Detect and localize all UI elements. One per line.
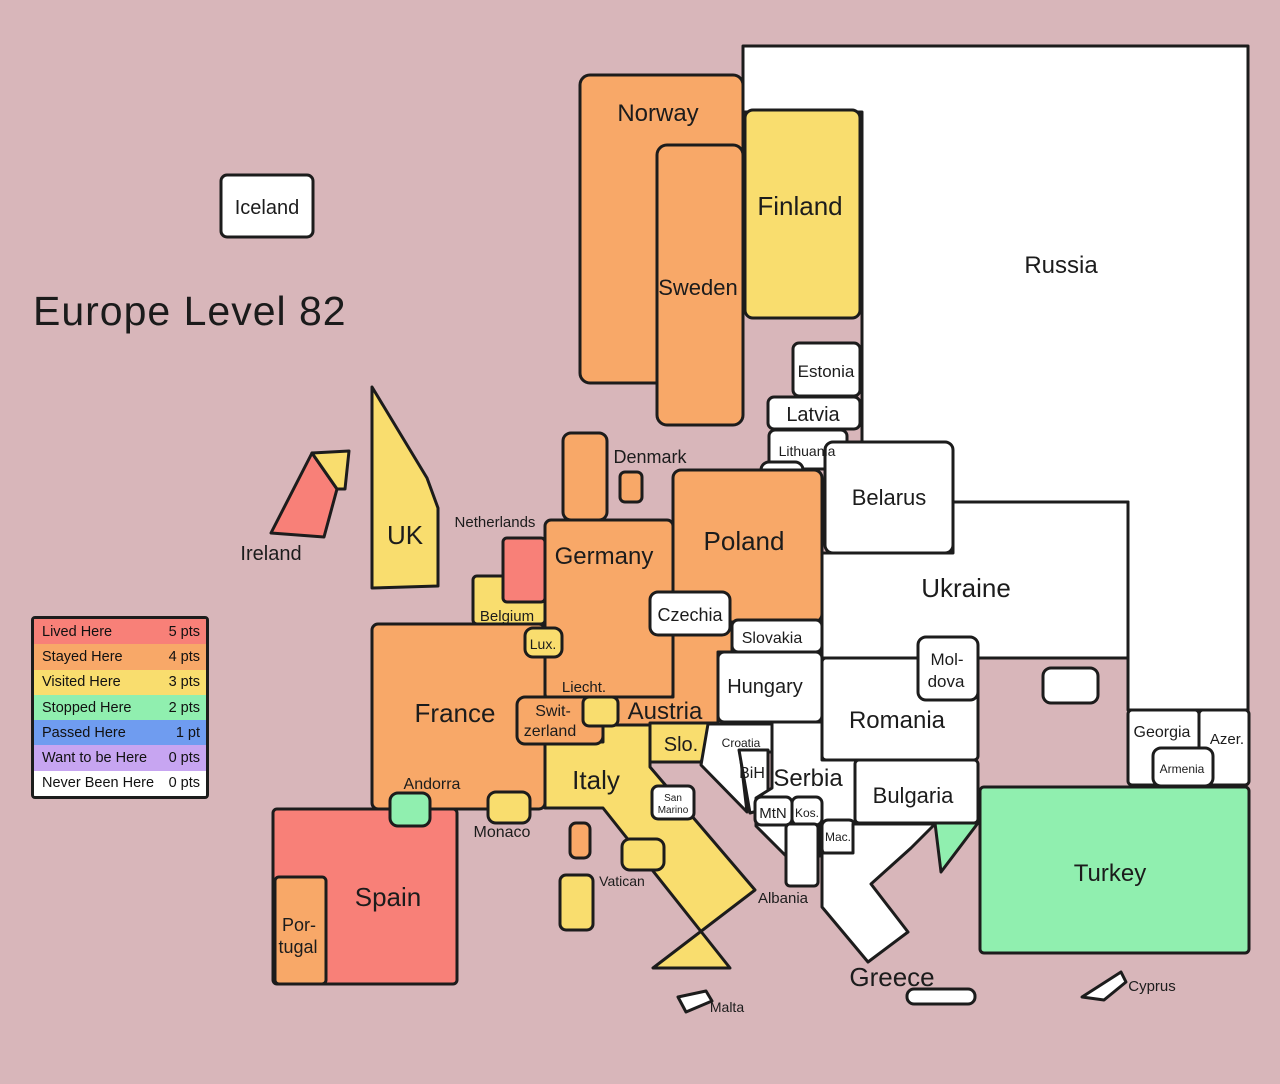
label-azerbaijan: Azer. [1210, 731, 1244, 748]
label-hungary: Hungary [727, 676, 803, 698]
label-armenia: Armenia [1160, 762, 1205, 776]
label-sweden: Sweden [658, 275, 738, 300]
label-kosovo: Kos. [795, 806, 819, 820]
country-cyprus[interactable] [1082, 972, 1126, 1000]
label-albania: Albania [758, 890, 809, 907]
crimea-region[interactable] [1043, 668, 1098, 703]
label-san-marino-line1: San [664, 793, 682, 804]
label-latvia: Latvia [786, 404, 840, 426]
label-cyprus: Cyprus [1128, 978, 1176, 995]
label-moldova-line2: dova [928, 672, 965, 691]
label-ireland: Ireland [240, 543, 301, 565]
label-serbia: Serbia [773, 765, 843, 792]
label-slovakia: Slovakia [742, 630, 803, 647]
label-moldova-line1: Mol- [930, 650, 963, 669]
label-portugal-line2: tugal [278, 937, 317, 957]
label-romania: Romania [849, 707, 946, 734]
label-turkey: Turkey [1074, 860, 1146, 887]
label-iceland: Iceland [235, 197, 300, 219]
label-croatia: Croatia [722, 736, 761, 750]
country-liechtenstein[interactable] [583, 697, 618, 726]
label-belgium: Belgium [480, 608, 534, 625]
country-andorra[interactable] [390, 793, 430, 826]
corsica-island[interactable] [570, 823, 590, 858]
label-germany: Germany [555, 543, 654, 570]
country-netherlands[interactable] [503, 538, 545, 602]
label-czechia: Czechia [657, 605, 723, 625]
label-andorra: Andorra [404, 776, 461, 793]
label-france: France [415, 698, 496, 728]
label-russia: Russia [1024, 252, 1098, 279]
label-spain: Spain [355, 882, 422, 912]
label-georgia: Georgia [1134, 724, 1191, 741]
label-poland: Poland [704, 526, 785, 556]
label-malta: Malta [710, 999, 744, 1015]
label-portugal-line1: Por- [282, 915, 316, 935]
label-macedonia: Mac. [825, 830, 851, 844]
label-belarus: Belarus [852, 485, 927, 510]
label-greece: Greece [849, 962, 934, 992]
label-switzerland-line1: Swit- [535, 703, 571, 720]
label-switzerland-line2: zerland [524, 723, 576, 740]
country-malta[interactable] [678, 991, 712, 1012]
label-montenegro: MtN [759, 805, 787, 822]
label-san-marino-line2: Marino [658, 805, 689, 816]
label-lithuania: Lithuania [779, 443, 836, 459]
denmark-island[interactable] [620, 472, 642, 502]
label-bulgaria: Bulgaria [873, 783, 954, 808]
label-slovenia: Slo. [664, 734, 698, 756]
denmark-jutland[interactable] [563, 433, 607, 520]
label-liechtenstein: Liecht. [562, 679, 606, 696]
label-uk: UK [387, 520, 424, 550]
label-finland: Finland [757, 191, 842, 221]
label-monaco: Monaco [474, 824, 531, 841]
label-ukraine: Ukraine [921, 573, 1011, 603]
country-monaco[interactable] [488, 792, 530, 823]
label-netherlands: Netherlands [455, 514, 536, 531]
country-albania[interactable] [786, 824, 818, 886]
label-norway: Norway [617, 100, 698, 127]
label-luxembourg: Lux. [530, 636, 556, 652]
sardinia-island[interactable] [560, 875, 593, 930]
label-estonia: Estonia [798, 362, 855, 381]
label-vatican: Vatican [599, 873, 645, 889]
label-austria: Austria [628, 698, 703, 725]
label-italy: Italy [572, 765, 620, 795]
label-bih: BiH [739, 765, 765, 782]
turkey-thrace[interactable] [935, 823, 978, 872]
country-vatican[interactable] [622, 839, 664, 870]
label-denmark: Denmark [613, 447, 687, 467]
country-uk[interactable] [372, 387, 438, 588]
europe-level-map: Europe Level 82 Lived Here 5 pts Stayed … [0, 0, 1280, 1084]
